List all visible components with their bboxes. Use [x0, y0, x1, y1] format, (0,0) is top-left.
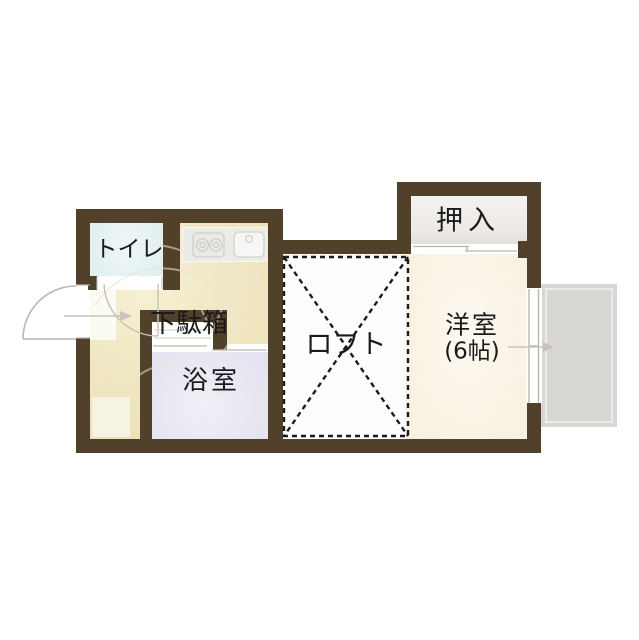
toilet-bottom-wall: [88, 276, 97, 290]
closet-door-stub: [518, 241, 541, 258]
toilet-door: [97, 276, 163, 290]
window-strip: [526, 288, 542, 404]
western-room-size-label: (6帖): [444, 341, 500, 364]
genkan-entry-strip: [90, 285, 116, 340]
right-block-left-wall: [397, 196, 411, 254]
loft-label: ロフト: [306, 332, 387, 359]
western-room-label: 洋室: [445, 313, 499, 338]
left-wall-upper: [76, 209, 90, 285]
balcony-railing: [545, 288, 613, 423]
floor-plan: トイレ 下駄箱 浴室 ロフト 押入 洋室 (6帖): [0, 0, 639, 640]
bottom-wall: [76, 439, 541, 453]
right-wall-lower: [527, 403, 541, 439]
toilet-right-wall: [163, 223, 180, 290]
left-block-top-wall: [76, 209, 283, 223]
balcony: [541, 284, 617, 427]
genkan-step-mat: [92, 397, 130, 437]
toilet-label: トイレ: [95, 239, 164, 262]
closet-sliding-door: [411, 244, 527, 254]
left-wall-lower: [76, 338, 90, 453]
right-block-top-wall: [397, 182, 541, 196]
kitchen-counter: [182, 227, 267, 262]
bathroom-label: 浴室: [182, 368, 240, 394]
entrance-door-arc-icon: [23, 285, 90, 339]
closet-label: 押入: [436, 208, 500, 235]
loft-top-wall: [283, 240, 411, 254]
shoe-cabinet-label: 下駄箱: [150, 311, 228, 337]
left-block-right-wall: [268, 223, 283, 439]
